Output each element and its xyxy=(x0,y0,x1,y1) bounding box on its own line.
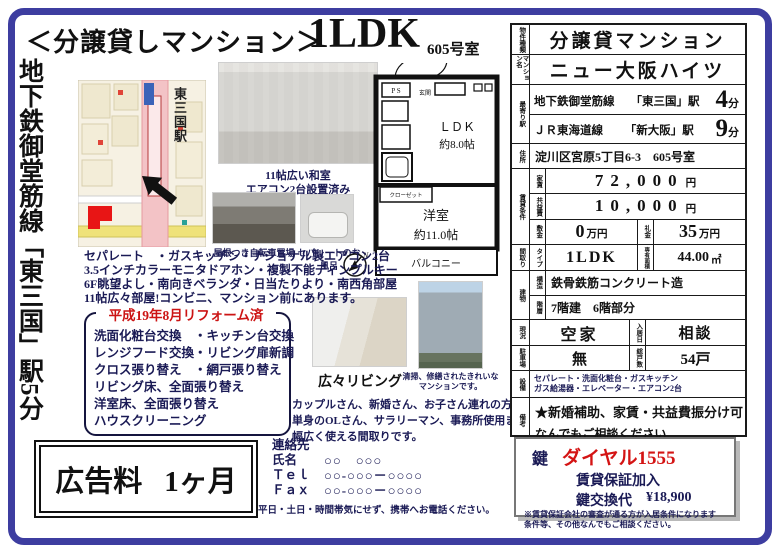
bicycle-parking-photo xyxy=(212,192,296,244)
address-label: 住所 xyxy=(512,144,530,168)
terms-label: 賃貸条件 xyxy=(512,169,530,244)
remarks-line1: ★新婚補助、家賃・共益費振分け可 xyxy=(535,402,743,421)
ad-fee-label: 広告料 xyxy=(55,458,142,500)
structure-value: 鉄骨鉄筋コンクリート造 xyxy=(546,271,745,295)
station-2-name: 「新大阪」駅 xyxy=(625,122,694,141)
floors-label: 階層 xyxy=(530,296,546,320)
rent-label: 家賃 xyxy=(530,169,546,193)
equipment-line2: ガス給湯器・エレベーター・エアコン2台 xyxy=(534,384,745,394)
floorplan-closet-label: クローゼット xyxy=(389,191,422,199)
key-exchange-value: ¥18,900 xyxy=(646,490,692,510)
page-title: ＜分譲貸しマンション＞ xyxy=(26,22,323,59)
remarks-label: 備考 xyxy=(512,398,530,442)
map-station-label: 東三国駅 xyxy=(170,87,189,143)
row-equipment: 設備 セパレート・洗面化粧台・ガスキッチン ガス給湯器・エレベーター・エアコン2… xyxy=(512,371,745,398)
station-1: 地下鉄御堂筋線 「東三国」駅 4分 xyxy=(530,85,745,115)
key-guarantee: 賃貸保証加入 xyxy=(524,470,726,490)
station-2-line: ＪＲ東海道線 xyxy=(534,122,603,141)
floors-value: 7階建 6階部分 xyxy=(546,296,745,320)
contact-fax-label: Ｆａｘ xyxy=(272,484,324,497)
property-type-label: 物件種類 xyxy=(512,25,530,54)
floors-row: 階層 7階建 6階部分 xyxy=(530,296,745,320)
type-value: 1LDK xyxy=(546,245,637,270)
floorplan-diagram: P S 玄関 ＬＤＫ 約8.0帖 クローゼット 洋室 約11.0帖 バルコニー xyxy=(373,63,500,283)
deposit-keymoney-row: 敷金 0万円 礼金 35万円 xyxy=(530,220,745,244)
rent-row: 家賃 72,000円 xyxy=(530,169,745,194)
status-label: 現況 xyxy=(512,320,530,345)
key-exchange-label: 鍵交換代 xyxy=(576,490,632,510)
washitsu-room-photo xyxy=(218,62,378,164)
row-remarks: 備考 ★新婚補助、家賃・共益費振分け可 なんでもご相談ください xyxy=(512,398,745,442)
rail-line-sign xyxy=(144,83,154,105)
contact-fax-value: ○○-○○○－○○○○ xyxy=(324,484,423,497)
floorplan-balcony-label: バルコニー xyxy=(411,258,461,270)
room-number: 605号室 xyxy=(427,38,480,59)
structure-label: 構造 xyxy=(530,271,546,295)
contact-tel-label: Ｔｅｌ xyxy=(272,469,324,482)
floorplan-room-label: 洋室 xyxy=(423,208,449,223)
status-value: 空家 xyxy=(530,320,629,345)
contact-name-value: ○○ ○○○ xyxy=(324,454,382,467)
living-room-photo xyxy=(312,297,407,367)
area-label: 専有面積 xyxy=(637,245,654,270)
building-caption-line1: 清掃、修繕されたきれいな xyxy=(403,372,499,381)
type-label: タイプ xyxy=(530,245,546,270)
bath-photo xyxy=(300,194,354,243)
building-name-value: ニュー大阪ハイツ xyxy=(530,55,745,84)
row-building-name: マンション名 ニュー大阪ハイツ xyxy=(512,55,745,85)
contact-footer-note: 平日・土日・時間帯気にせず、携帯へお電話ください。 xyxy=(258,502,495,516)
audience-line-2: 単身のOLさん、サラリーマン、事務所使用まで xyxy=(292,412,512,428)
equipment-label: 設備 xyxy=(512,371,530,397)
parking-value: 無 xyxy=(530,346,629,370)
flyer-page: ＜分譲貸しマンション＞ 1LDK 605号室 地下鉄御堂筋線「東三国」駅5分 東… xyxy=(0,0,780,553)
contact-block: 連絡先 氏名 ○○ ○○○ Ｔｅｌ ○○-○○○－○○○○ Ｆａｘ ○○-○○○… xyxy=(272,439,423,499)
parking-label: 駐車場 xyxy=(512,346,530,370)
row-status: 現況 空家 入居日 相談 xyxy=(512,320,745,346)
ad-fee-value: 1ヶ月 xyxy=(164,458,237,500)
fee-value: 10,000 xyxy=(595,196,684,216)
floorplan-ldk-label: ＬＤＫ xyxy=(439,120,475,134)
row-address: 住所 淀川区宮原5丁目6-3 605号室 xyxy=(512,144,745,169)
row-parking: 駐車場 無 総戸数 54戸 xyxy=(512,346,745,371)
key-money-value: 35 xyxy=(679,221,697,242)
station-access-banner: 地下鉄御堂筋線「東三国」駅5分 xyxy=(15,58,43,450)
address-value: 淀川区宮原5丁目6-3 605号室 xyxy=(530,144,745,168)
building-exterior-photo xyxy=(418,281,483,369)
area-value: 44.00 xyxy=(678,250,710,266)
row-building: 建物 構造 鉄骨鉄筋コンクリート造 階層 7階建 6階部分 xyxy=(512,271,745,320)
station-2-minutes: 9 xyxy=(716,115,729,142)
fee-label: 共益費 xyxy=(530,194,546,218)
key-note-2: 条件等、その他なんでもご相談ください。 xyxy=(524,520,726,530)
key-money-label: 礼金 xyxy=(637,220,654,244)
contact-name-label: 氏名 xyxy=(272,454,324,467)
building-caption-line2: マンションです。 xyxy=(419,382,482,391)
building-caption: 清掃、修繕されたきれいな マンションです。 xyxy=(398,372,503,392)
floorplan-entrance-label: 玄関 xyxy=(419,89,431,97)
floorplan-room-size: 約11.0帖 xyxy=(414,227,459,242)
equipment-line1: セパレート・洗面化粧台・ガスキッチン xyxy=(534,374,745,384)
floorplan-ldk-size: 約8.0帖 xyxy=(439,137,475,151)
floorplan-ps-label: P S xyxy=(391,87,400,95)
row-terms: 賃貸条件 家賃 72,000円 共益費 10,000円 敷金 0万円 礼金 35… xyxy=(512,169,745,245)
row-property-type: 物件種類 分譲貸マンション xyxy=(512,25,745,55)
audience-line-1: カップルさん、新婚さん、お子さん連れの方から、 xyxy=(292,396,512,412)
spec-table: 物件種類 分譲貸マンション マンション名 ニュー大阪ハイツ 最寄り駅 地下鉄御堂… xyxy=(510,23,747,437)
station-label: 最寄り駅 xyxy=(512,85,530,143)
reform-title: 平成19年8月リフォーム済 xyxy=(96,304,276,324)
contact-heading: 連絡先 xyxy=(272,439,310,452)
station-1-name: 「東三国」駅 xyxy=(631,93,700,112)
key-info-box: 鍵 ダイヤル1555 賃貸保証加入 鍵交換代 ¥18,900 ※賃貸保証会社の審… xyxy=(514,437,736,517)
key-label: 鍵 xyxy=(532,445,548,469)
building-name-label: マンション名 xyxy=(512,55,530,84)
layout-type-title: 1LDK xyxy=(308,10,420,58)
row-stations: 最寄り駅 地下鉄御堂筋線 「東三国」駅 4分 ＪＲ東海道線 「新大阪」駅 9分 xyxy=(512,85,745,144)
structure-row: 構造 鉄骨鉄筋コンクリート造 xyxy=(530,271,745,296)
movein-value: 相談 xyxy=(646,320,745,345)
deposit-value: 0 xyxy=(576,221,585,242)
contact-tel-value: ○○-○○○－○○○○ xyxy=(324,469,423,482)
ad-fee-box: 広告料 1ヶ月 xyxy=(34,440,258,518)
station-2: ＪＲ東海道線 「新大阪」駅 9分 xyxy=(530,115,745,144)
row-layout: 間取り タイプ 1LDK 専有面積 44.00㎡ xyxy=(512,245,745,271)
units-value: 54戸 xyxy=(646,346,745,370)
key-dial-value: ダイヤル1555 xyxy=(562,443,675,470)
station-1-minutes: 4 xyxy=(716,86,729,113)
deposit-label: 敷金 xyxy=(530,220,546,244)
bathtub-shape xyxy=(308,212,348,238)
property-type-value: 分譲貸マンション xyxy=(530,25,745,54)
station-1-line: 地下鉄御堂筋線 xyxy=(534,93,615,112)
fee-row: 共益費 10,000円 xyxy=(530,194,745,219)
movein-label: 入居日 xyxy=(629,320,646,345)
building-label: 建物 xyxy=(512,271,530,319)
units-label: 総戸数 xyxy=(629,346,646,370)
reform-item-6: ハウスクリーニング xyxy=(94,410,284,429)
layout-label: 間取り xyxy=(512,245,530,270)
rent-value: 72,000 xyxy=(595,171,684,191)
key-note-1: ※賃貸保証会社の審査が通る方が入居条件になります xyxy=(524,510,726,520)
